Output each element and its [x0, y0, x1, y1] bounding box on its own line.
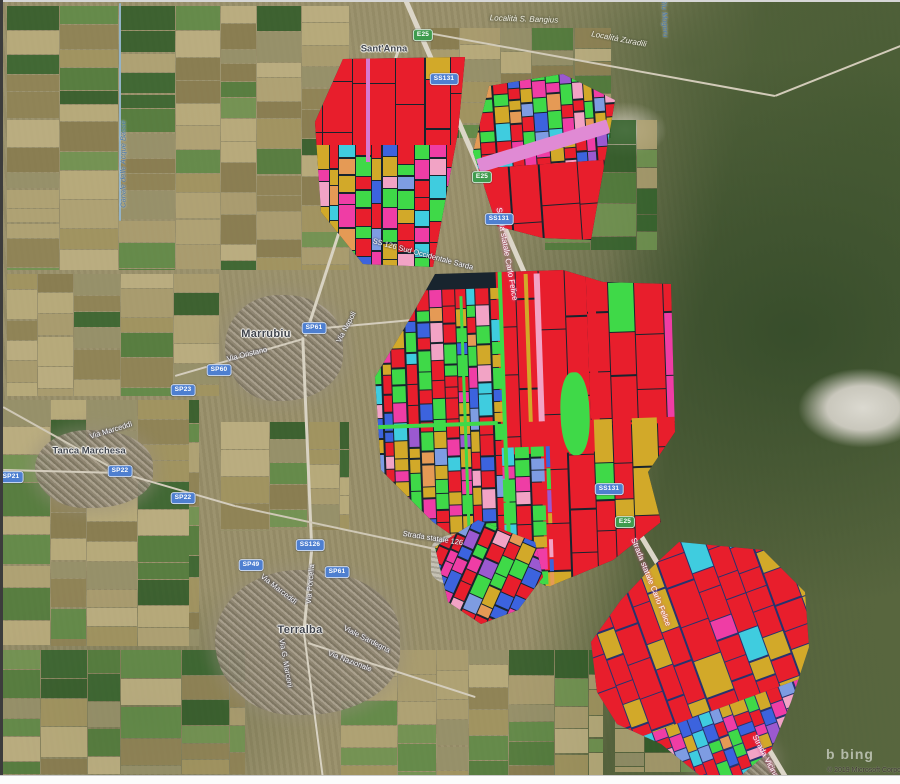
- parcel[interactable]: [385, 432, 393, 442]
- parcel[interactable]: [716, 256, 732, 324]
- parcel[interactable]: [430, 159, 446, 175]
- parcel[interactable]: [501, 624, 511, 639]
- parcel[interactable]: [372, 282, 381, 299]
- parcel[interactable]: [857, 657, 868, 675]
- parcel[interactable]: [457, 148, 468, 167]
- parcel[interactable]: [801, 519, 825, 559]
- parcel[interactable]: [689, 272, 717, 337]
- parcel[interactable]: [398, 191, 414, 210]
- parcel[interactable]: [441, 626, 453, 636]
- parcel[interactable]: [686, 197, 713, 234]
- parcel[interactable]: [398, 558, 412, 573]
- parcel[interactable]: [398, 177, 414, 190]
- parcel[interactable]: [447, 233, 462, 244]
- parcel[interactable]: [447, 187, 462, 210]
- parcel[interactable]: [482, 471, 496, 488]
- parcel[interactable]: [433, 399, 446, 419]
- parcel[interactable]: [398, 542, 412, 557]
- parcel[interactable]: [836, 704, 850, 718]
- parcel[interactable]: [805, 755, 822, 770]
- parcel[interactable]: [356, 239, 371, 256]
- parcel[interactable]: [804, 704, 823, 723]
- parcel[interactable]: [387, 493, 396, 514]
- parcel[interactable]: [828, 596, 851, 632]
- parcel[interactable]: [386, 483, 394, 492]
- parcel[interactable]: [819, 700, 838, 721]
- parcel[interactable]: [605, 104, 622, 118]
- parcel[interactable]: [608, 282, 634, 332]
- parcel[interactable]: [371, 474, 386, 492]
- parcel[interactable]: [349, 293, 363, 304]
- parcel[interactable]: [381, 326, 390, 345]
- parcel[interactable]: [536, 620, 551, 641]
- parcel[interactable]: [752, 451, 787, 496]
- parcel[interactable]: [408, 616, 417, 620]
- parcel[interactable]: [405, 333, 416, 352]
- parcel[interactable]: [409, 427, 420, 447]
- parcel[interactable]: [330, 300, 338, 309]
- parcel[interactable]: [393, 403, 407, 423]
- parcel[interactable]: [584, 102, 593, 118]
- parcel[interactable]: [560, 84, 573, 104]
- parcel[interactable]: [510, 112, 521, 124]
- parcel[interactable]: [876, 744, 891, 759]
- parcel[interactable]: [708, 415, 726, 455]
- parcel[interactable]: [442, 290, 454, 306]
- parcel[interactable]: [351, 345, 366, 365]
- parcel[interactable]: [787, 705, 804, 720]
- parcel[interactable]: [611, 376, 637, 422]
- parcel[interactable]: [564, 596, 594, 632]
- parcel[interactable]: [578, 575, 602, 603]
- parcel[interactable]: [791, 754, 806, 771]
- parcel[interactable]: [415, 617, 426, 630]
- parcel[interactable]: [572, 553, 599, 607]
- parcel[interactable]: [801, 743, 818, 759]
- parcel[interactable]: [660, 198, 687, 267]
- parcel[interactable]: [398, 224, 414, 240]
- parcel[interactable]: [400, 606, 414, 619]
- parcel[interactable]: [416, 312, 428, 322]
- parcel[interactable]: [415, 145, 429, 159]
- parcel[interactable]: [526, 623, 547, 647]
- parcel[interactable]: [476, 305, 490, 326]
- parcel[interactable]: [372, 181, 381, 203]
- parcel[interactable]: [415, 258, 429, 278]
- parcel[interactable]: [594, 419, 613, 463]
- parcel[interactable]: [869, 691, 877, 701]
- parcel[interactable]: [658, 416, 684, 446]
- parcel[interactable]: [521, 637, 536, 648]
- parcel[interactable]: [539, 162, 579, 205]
- parcel[interactable]: [478, 365, 492, 382]
- parcel[interactable]: [814, 556, 839, 598]
- parcel[interactable]: [705, 469, 736, 508]
- parcel[interactable]: [709, 455, 726, 487]
- parcel[interactable]: [337, 307, 349, 319]
- parcel[interactable]: [449, 471, 461, 491]
- parcel[interactable]: [430, 322, 443, 342]
- parcel[interactable]: [720, 386, 735, 421]
- parcel[interactable]: [356, 209, 371, 226]
- parcel[interactable]: [449, 492, 461, 504]
- parcel[interactable]: [548, 111, 562, 129]
- parcel[interactable]: [534, 604, 555, 628]
- parcel[interactable]: [777, 715, 793, 733]
- parcel[interactable]: [517, 505, 532, 524]
- parcel[interactable]: [478, 623, 487, 638]
- parcel[interactable]: [483, 509, 497, 522]
- parcel[interactable]: [524, 616, 549, 645]
- parcel[interactable]: [366, 333, 381, 346]
- parcel[interactable]: [585, 266, 608, 312]
- parcel[interactable]: [372, 252, 381, 266]
- parcel[interactable]: [812, 614, 841, 643]
- parcel[interactable]: [372, 145, 381, 158]
- parcel[interactable]: [479, 220, 515, 278]
- parcel[interactable]: [866, 716, 881, 732]
- parcel[interactable]: [372, 229, 381, 250]
- parcel[interactable]: [431, 343, 444, 360]
- parcel[interactable]: [368, 405, 383, 418]
- parcel[interactable]: [748, 520, 782, 552]
- parcel[interactable]: [406, 365, 417, 385]
- parcel[interactable]: [389, 559, 398, 574]
- parcel[interactable]: [569, 455, 596, 509]
- parcel[interactable]: [444, 344, 456, 364]
- parcel[interactable]: [372, 267, 381, 281]
- parcel[interactable]: [356, 481, 371, 502]
- parcel[interactable]: [495, 124, 510, 141]
- parcel[interactable]: [840, 716, 855, 734]
- parcel[interactable]: [873, 701, 884, 718]
- parcel[interactable]: [631, 32, 635, 42]
- parcel[interactable]: [463, 215, 474, 228]
- parcel[interactable]: [435, 466, 447, 479]
- parcel[interactable]: [463, 203, 474, 213]
- parcel[interactable]: [388, 543, 397, 558]
- parcel[interactable]: [421, 433, 434, 451]
- parcel[interactable]: [820, 637, 850, 669]
- parcel[interactable]: [415, 211, 429, 227]
- parcel[interactable]: [390, 575, 398, 587]
- parcel[interactable]: [532, 82, 546, 98]
- parcel[interactable]: [551, 607, 556, 620]
- parcel[interactable]: [832, 694, 845, 706]
- parcel[interactable]: [325, 294, 336, 305]
- parcel[interactable]: [688, 235, 715, 272]
- parcel[interactable]: [521, 610, 536, 626]
- parcel[interactable]: [434, 432, 447, 449]
- parcel[interactable]: [414, 574, 426, 595]
- parcel[interactable]: [667, 375, 693, 421]
- parcel[interactable]: [383, 145, 397, 156]
- parcel[interactable]: [546, 468, 551, 489]
- parcel[interactable]: [535, 586, 549, 597]
- parcel[interactable]: [448, 457, 460, 471]
- parcel[interactable]: [430, 308, 442, 322]
- parcel[interactable]: [426, 130, 450, 146]
- parcel[interactable]: [446, 398, 458, 418]
- parcel[interactable]: [509, 165, 542, 223]
- parcel[interactable]: [352, 366, 367, 387]
- parcel[interactable]: [330, 145, 338, 168]
- map-viewport[interactable]: b bing © 2019 Microsoft Corpo MarrubiuTe…: [3, 2, 900, 775]
- parcel[interactable]: [481, 457, 495, 471]
- parcel[interactable]: [494, 107, 509, 124]
- parcel[interactable]: [416, 290, 429, 310]
- parcel[interactable]: [369, 439, 384, 453]
- parcel[interactable]: [825, 718, 844, 738]
- parcel[interactable]: [383, 208, 397, 228]
- parcel[interactable]: [394, 441, 408, 458]
- parcel[interactable]: [530, 447, 544, 458]
- parcel[interactable]: [686, 474, 710, 506]
- parcel[interactable]: [613, 418, 632, 463]
- parcel[interactable]: [405, 322, 416, 332]
- parcel[interactable]: [399, 586, 413, 606]
- parcel[interactable]: [374, 566, 389, 580]
- parcel[interactable]: [443, 306, 455, 323]
- parcel[interactable]: [402, 580, 421, 603]
- parcel[interactable]: [339, 368, 351, 386]
- parcel[interactable]: [473, 487, 482, 504]
- parcel[interactable]: [354, 437, 369, 449]
- parcel[interactable]: [467, 306, 475, 317]
- parcel[interactable]: [427, 616, 441, 629]
- parcel[interactable]: [330, 170, 338, 185]
- parcel[interactable]: [633, 268, 664, 334]
- parcel[interactable]: [445, 376, 457, 386]
- parcel[interactable]: [599, 569, 618, 600]
- parcel[interactable]: [498, 620, 517, 640]
- parcel[interactable]: [833, 663, 847, 676]
- parcel[interactable]: [670, 502, 700, 536]
- parcel[interactable]: [437, 510, 449, 521]
- parcel[interactable]: [330, 206, 338, 220]
- parcel[interactable]: [458, 167, 468, 170]
- parcel[interactable]: [441, 637, 453, 647]
- parcel[interactable]: [710, 487, 727, 513]
- parcel[interactable]: [783, 469, 801, 491]
- parcel[interactable]: [385, 457, 393, 469]
- parcel[interactable]: [314, 401, 328, 414]
- parcel[interactable]: [572, 83, 583, 100]
- parcel[interactable]: [463, 246, 474, 263]
- parcel[interactable]: [396, 482, 410, 496]
- parcel[interactable]: [727, 453, 738, 507]
- parcel[interactable]: [664, 312, 691, 375]
- parcel[interactable]: [454, 622, 466, 637]
- parcel[interactable]: [356, 257, 371, 275]
- parcel[interactable]: [850, 654, 862, 660]
- parcel[interactable]: [398, 292, 414, 309]
- parcel[interactable]: [419, 390, 432, 403]
- parcel[interactable]: [398, 269, 414, 290]
- parcel[interactable]: [621, 92, 635, 109]
- parcel[interactable]: [345, 543, 357, 564]
- parcel[interactable]: [294, 274, 303, 286]
- parcel[interactable]: [383, 189, 397, 207]
- parcel[interactable]: [412, 525, 423, 536]
- parcel[interactable]: [475, 288, 489, 304]
- parcel[interactable]: [435, 449, 448, 465]
- parcel[interactable]: [564, 264, 586, 316]
- parcel[interactable]: [479, 394, 493, 415]
- parcel[interactable]: [398, 165, 414, 176]
- parcel[interactable]: [404, 291, 415, 302]
- parcel[interactable]: [531, 458, 545, 470]
- parcel[interactable]: [350, 331, 365, 345]
- parcel[interactable]: [465, 633, 479, 646]
- parcel[interactable]: [355, 468, 370, 481]
- parcel[interactable]: [860, 699, 876, 719]
- parcel[interactable]: [426, 80, 450, 129]
- parcel[interactable]: [467, 629, 478, 650]
- parcel[interactable]: [356, 177, 371, 190]
- parcel[interactable]: [419, 372, 432, 389]
- parcel[interactable]: [476, 185, 486, 205]
- parcel[interactable]: [416, 631, 427, 643]
- parcel[interactable]: [432, 381, 445, 398]
- parcel[interactable]: [846, 731, 859, 744]
- parcel[interactable]: [334, 543, 345, 559]
- parcel[interactable]: [774, 446, 793, 472]
- parcel[interactable]: [396, 599, 412, 616]
- parcel[interactable]: [589, 372, 612, 419]
- parcel[interactable]: [426, 583, 438, 593]
- parcel[interactable]: [505, 608, 522, 624]
- parcel[interactable]: [423, 487, 435, 498]
- parcel[interactable]: [415, 244, 429, 257]
- parcel[interactable]: [418, 519, 434, 538]
- parcel[interactable]: [424, 519, 437, 535]
- parcel[interactable]: [353, 15, 394, 83]
- parcel[interactable]: [410, 473, 421, 491]
- parcel[interactable]: [801, 666, 828, 678]
- parcel[interactable]: [304, 283, 315, 298]
- parcel[interactable]: [285, 269, 292, 283]
- parcel[interactable]: [389, 305, 403, 320]
- parcel[interactable]: [372, 521, 387, 542]
- parcel[interactable]: [536, 592, 571, 635]
- parcel[interactable]: [339, 145, 355, 157]
- parcel[interactable]: [372, 159, 381, 180]
- parcel[interactable]: [845, 659, 859, 672]
- parcel[interactable]: [549, 559, 554, 571]
- parcel[interactable]: [447, 211, 462, 231]
- parcel[interactable]: [352, 387, 367, 407]
- parcel[interactable]: [621, 79, 634, 91]
- parcel[interactable]: [413, 547, 424, 556]
- parcel[interactable]: [476, 241, 486, 252]
- parcel[interactable]: [521, 625, 536, 635]
- parcel[interactable]: [463, 229, 474, 245]
- parcel[interactable]: [534, 114, 548, 132]
- parcel[interactable]: [486, 255, 494, 270]
- parcel[interactable]: [386, 470, 394, 482]
- parcel[interactable]: [515, 460, 530, 477]
- parcel[interactable]: [467, 318, 476, 333]
- parcel[interactable]: [441, 612, 458, 630]
- parcel[interactable]: [419, 609, 432, 624]
- parcel[interactable]: [632, 417, 659, 467]
- parcel[interactable]: [383, 292, 397, 309]
- parcel[interactable]: [356, 302, 371, 310]
- parcel[interactable]: [509, 101, 520, 111]
- parcel[interactable]: [353, 408, 368, 423]
- parcel[interactable]: [447, 145, 462, 167]
- parcel[interactable]: [339, 159, 355, 175]
- parcel[interactable]: [685, 448, 708, 474]
- parcel[interactable]: [410, 567, 426, 584]
- parcel[interactable]: [547, 513, 552, 523]
- parcel[interactable]: [382, 364, 390, 374]
- parcel[interactable]: [635, 89, 640, 102]
- parcel[interactable]: [466, 289, 475, 305]
- parcel[interactable]: [791, 716, 809, 734]
- parcel[interactable]: [813, 686, 831, 704]
- parcel[interactable]: [437, 590, 453, 608]
- parcel[interactable]: [398, 210, 414, 222]
- parcel[interactable]: [396, 105, 425, 145]
- parcel[interactable]: [780, 528, 814, 573]
- parcel[interactable]: [383, 376, 392, 395]
- parcel[interactable]: [339, 205, 355, 228]
- parcel[interactable]: [471, 431, 480, 451]
- parcel[interactable]: [803, 590, 832, 621]
- parcel[interactable]: [617, 528, 636, 580]
- parcel[interactable]: [570, 509, 597, 552]
- parcel[interactable]: [390, 331, 404, 348]
- parcel[interactable]: [399, 567, 413, 582]
- parcel[interactable]: [808, 671, 826, 689]
- parcel[interactable]: [800, 694, 817, 708]
- parcel[interactable]: [786, 740, 801, 757]
- parcel[interactable]: [398, 241, 414, 252]
- parcel[interactable]: [533, 522, 547, 536]
- parcel[interactable]: [415, 181, 429, 197]
- parcel[interactable]: [395, 459, 409, 470]
- parcel[interactable]: [399, 574, 413, 585]
- parcel[interactable]: [407, 385, 418, 405]
- parcel[interactable]: [409, 448, 420, 458]
- parcel[interactable]: [410, 459, 421, 472]
- parcel[interactable]: [636, 334, 666, 389]
- parcel[interactable]: [349, 304, 363, 316]
- parcel[interactable]: [531, 470, 545, 481]
- parcel[interactable]: [373, 543, 388, 553]
- parcel[interactable]: [340, 402, 352, 416]
- parcel[interactable]: [336, 293, 348, 306]
- parcel[interactable]: [432, 361, 445, 380]
- parcel[interactable]: [444, 324, 456, 343]
- parcel[interactable]: [823, 667, 838, 686]
- parcel[interactable]: [470, 409, 479, 430]
- parcel[interactable]: [330, 280, 338, 299]
- parcel[interactable]: [884, 731, 895, 749]
- parcel[interactable]: [447, 245, 462, 266]
- parcel[interactable]: [340, 387, 352, 402]
- parcel[interactable]: [436, 494, 449, 510]
- parcel[interactable]: [547, 619, 574, 644]
- parcel[interactable]: [561, 105, 573, 118]
- parcel[interactable]: [330, 186, 338, 205]
- parcel[interactable]: [837, 674, 851, 688]
- parcel[interactable]: [810, 766, 828, 775]
- parcel-block[interactable]: [366, 57, 370, 162]
- parcel[interactable]: [445, 365, 457, 375]
